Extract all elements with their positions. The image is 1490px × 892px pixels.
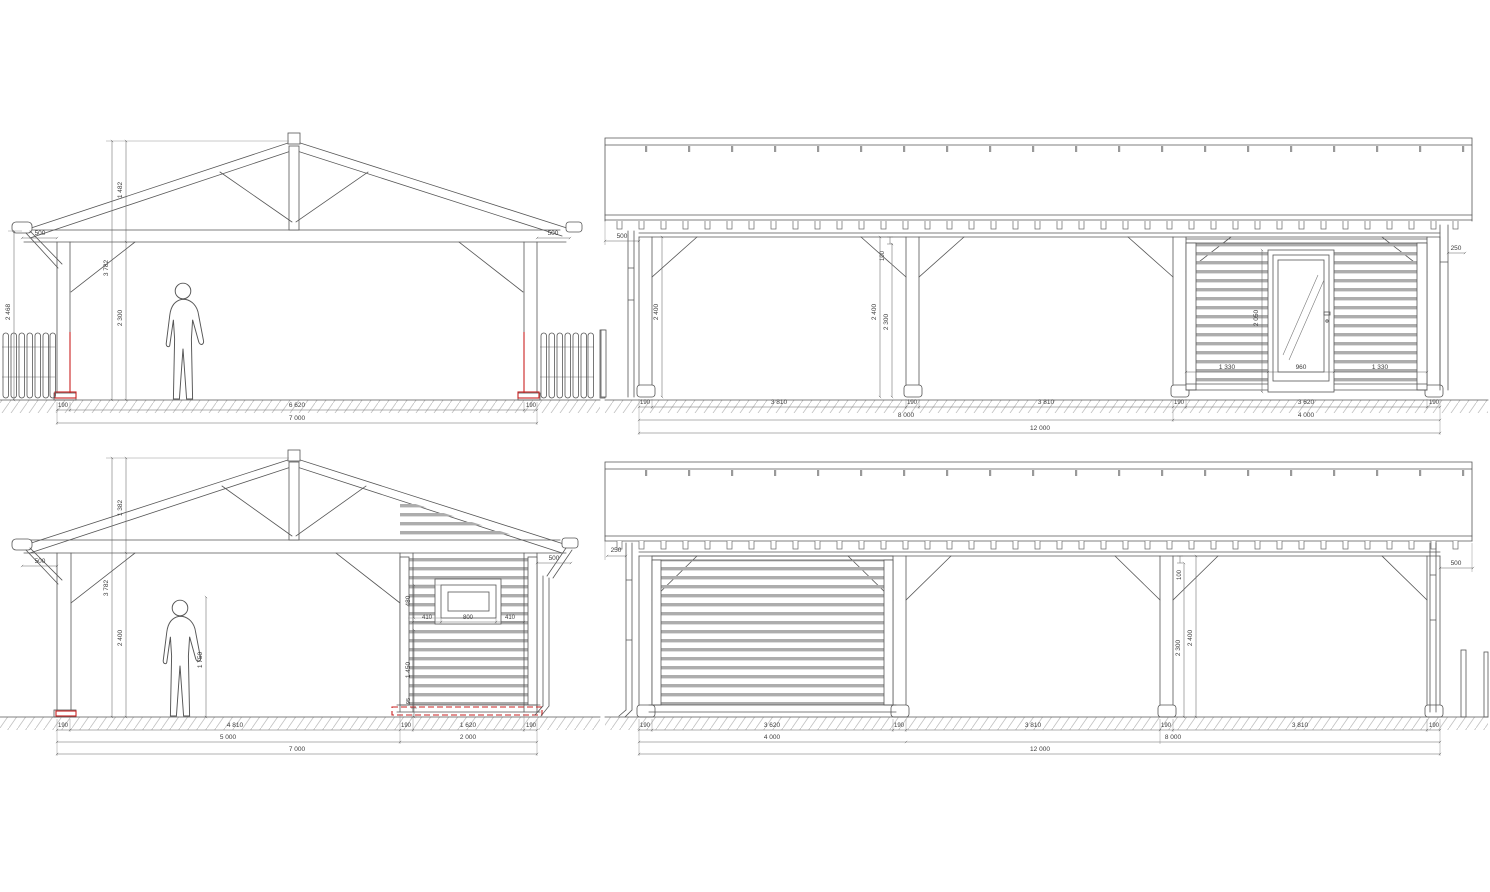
person-figure [163, 600, 200, 716]
dim-post-right: 190 [526, 403, 537, 409]
dim-total-length: 12 000 [1030, 425, 1050, 432]
fence-post-edge-2 [1484, 652, 1488, 717]
dim-clear-span: 6 620 [289, 402, 306, 409]
dim-post1: 190 [640, 723, 651, 729]
dim-downpipe-offset: 250 [1451, 245, 1462, 252]
dim-total-length: 12 000 [1030, 746, 1050, 753]
fence-post-edge [1461, 650, 1466, 717]
dim-post1-height: 2 400 [653, 303, 660, 320]
dim-ridge-rise: 1 382 [117, 499, 124, 516]
dim-bay1: 3 810 [771, 399, 788, 406]
dim-eave-height: 3 782 [103, 579, 110, 596]
dim-post-right: 190 [526, 723, 537, 729]
dim-brace-drop: 100 [880, 250, 886, 261]
dim-outer-height: 2 468 [5, 303, 12, 320]
dim-post2: 190 [894, 723, 905, 729]
columns [54, 242, 540, 400]
dim-store-length: 4 000 [1298, 412, 1315, 419]
dim-overhang-right: 500 [548, 230, 559, 237]
dim-bay-store: 1 620 [460, 722, 477, 729]
dim-downpipe-offset: 250 [611, 547, 622, 554]
view-gable-section-a: 3 782 1 482 2 300 2 468 500 500 190 6 62… [0, 133, 605, 425]
fence-post-edge [601, 330, 606, 397]
dim-store-length: 4 000 [764, 734, 781, 741]
person-figure [166, 283, 203, 399]
dim-total-span: 7 000 [289, 746, 306, 753]
dim-ridge-rise: 1 482 [117, 181, 124, 198]
dim-carport-length: 8 000 [898, 412, 915, 419]
dim-person-height: 1 750 [197, 651, 204, 668]
dim-post-left: 190 [58, 723, 69, 729]
dim-overhang-left: 500 [617, 233, 628, 240]
drawing-canvas: 3 782 1 482 2 300 2 468 500 500 190 6 62… [0, 0, 1490, 892]
view-side-elevation-rear: 250 100 2 300 2 400 500 190 3 620 190 3 … [605, 462, 1488, 756]
ground [0, 717, 600, 730]
dim-bay3: 3 620 [1298, 399, 1315, 406]
dim-post2-clear: 2 300 [883, 313, 890, 330]
dim-bay2: 3 810 [1038, 399, 1055, 406]
dim-door-width: 960 [1296, 364, 1307, 371]
dim-post-mid: 190 [401, 723, 412, 729]
view-gable-section-b: 3 782 1 382 2 400 500 500 1 750 480 410 … [0, 450, 600, 756]
dim-eave-height: 3 782 [103, 259, 110, 276]
dim-window-right: 410 [505, 615, 516, 621]
dim-store-span: 2 000 [460, 734, 477, 741]
dim-total-span: 7 000 [289, 415, 306, 422]
carport-elevations-drawing: 3 782 1 482 2 300 2 468 500 500 190 6 62… [0, 0, 1490, 892]
dim-post1: 190 [640, 400, 651, 406]
dim-overhang-right: 500 [1451, 560, 1462, 567]
dim-overhang-left: 500 [35, 230, 46, 237]
dim-post3: 190 [1161, 723, 1172, 729]
dim-plinth-height: 95 [406, 698, 412, 704]
dim-carport-span: 5 000 [220, 734, 237, 741]
dim-post-left: 190 [58, 403, 69, 409]
dim-window-height: 480 [405, 595, 412, 606]
gable-slat-infill [400, 499, 528, 540]
dim-bay2: 3 810 [1025, 722, 1042, 729]
dim-sill-height: 1 450 [405, 661, 412, 678]
dim-bay3: 3 810 [1292, 722, 1309, 729]
dim-brace-drop: 100 [1177, 569, 1183, 580]
dim-wall-left: 1 330 [1219, 364, 1236, 371]
dim-carport-length: 8 000 [1165, 734, 1182, 741]
dim-clear-height: 2 300 [117, 309, 124, 326]
dim-post2: 190 [907, 400, 918, 406]
store-wall [649, 556, 896, 712]
dim-post-height: 2 400 [1187, 629, 1194, 646]
dim-bay1: 3 620 [764, 722, 781, 729]
dim-window-width: 800 [463, 615, 474, 621]
roof-band [605, 462, 1472, 556]
dim-post4: 190 [1429, 400, 1440, 406]
view-side-elevation-door: 500 2 400 100 2 400 2 300 2 050 1 330 96… [601, 138, 1488, 435]
dim-bay-open: 4 810 [227, 722, 244, 729]
dim-post-clear: 2 300 [1175, 639, 1182, 656]
dim-overhang-left: 500 [35, 558, 46, 565]
roof-band [605, 138, 1472, 237]
ground [605, 717, 1488, 730]
dim-window-left: 410 [422, 615, 433, 621]
dim-overhang-right: 500 [549, 555, 560, 562]
columns [54, 553, 76, 717]
dim-post3: 190 [1174, 400, 1185, 406]
dim-door-height: 2 050 [1253, 309, 1260, 326]
dim-post4: 190 [1429, 723, 1440, 729]
dim-post2-height: 2 400 [871, 303, 878, 320]
dim-clear-height: 2 400 [117, 629, 124, 646]
dim-wall-right: 1 330 [1372, 364, 1389, 371]
dimensions: 3 782 1 482 2 300 2 468 500 500 190 6 62… [5, 141, 570, 425]
picket-fence-right [540, 330, 605, 398]
picket-fence-left [2, 333, 56, 398]
